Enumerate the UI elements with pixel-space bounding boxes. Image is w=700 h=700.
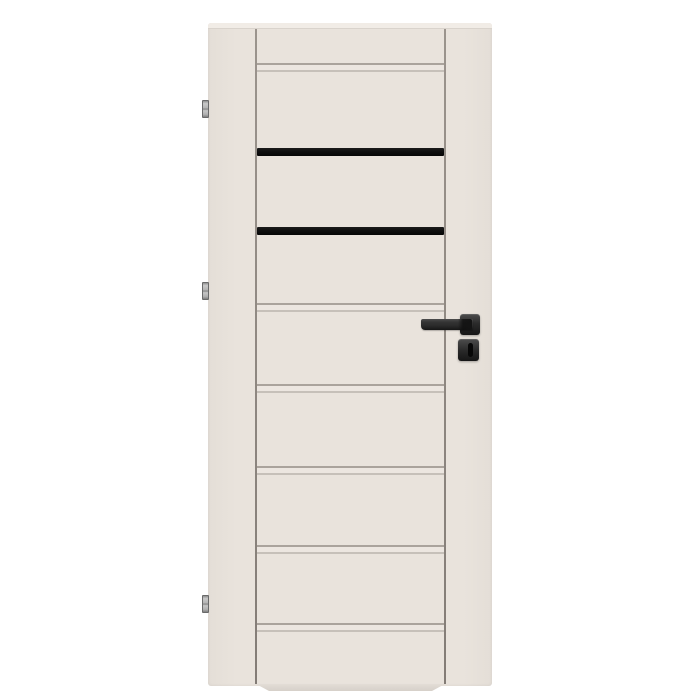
door-hinge — [202, 282, 209, 300]
product-photo-stage — [0, 0, 700, 700]
door-leaf — [208, 23, 492, 686]
door-top-edge-highlight — [208, 23, 492, 29]
door-bottom-edge — [256, 684, 445, 691]
stile-gap-line — [444, 29, 446, 684]
panel-groove — [257, 466, 444, 475]
panel-groove — [257, 384, 444, 393]
black-glass-stripe — [257, 148, 444, 156]
panel-groove — [257, 303, 444, 312]
panel-groove — [257, 63, 444, 72]
handle-neck-shadow — [458, 319, 472, 330]
keyhole-slot — [468, 343, 473, 357]
black-glass-stripe — [257, 227, 444, 235]
panel-groove — [257, 623, 444, 632]
stile-gap-line — [255, 29, 257, 684]
door-hinge — [202, 595, 209, 613]
panel-groove — [257, 545, 444, 554]
door-hinge — [202, 100, 209, 118]
